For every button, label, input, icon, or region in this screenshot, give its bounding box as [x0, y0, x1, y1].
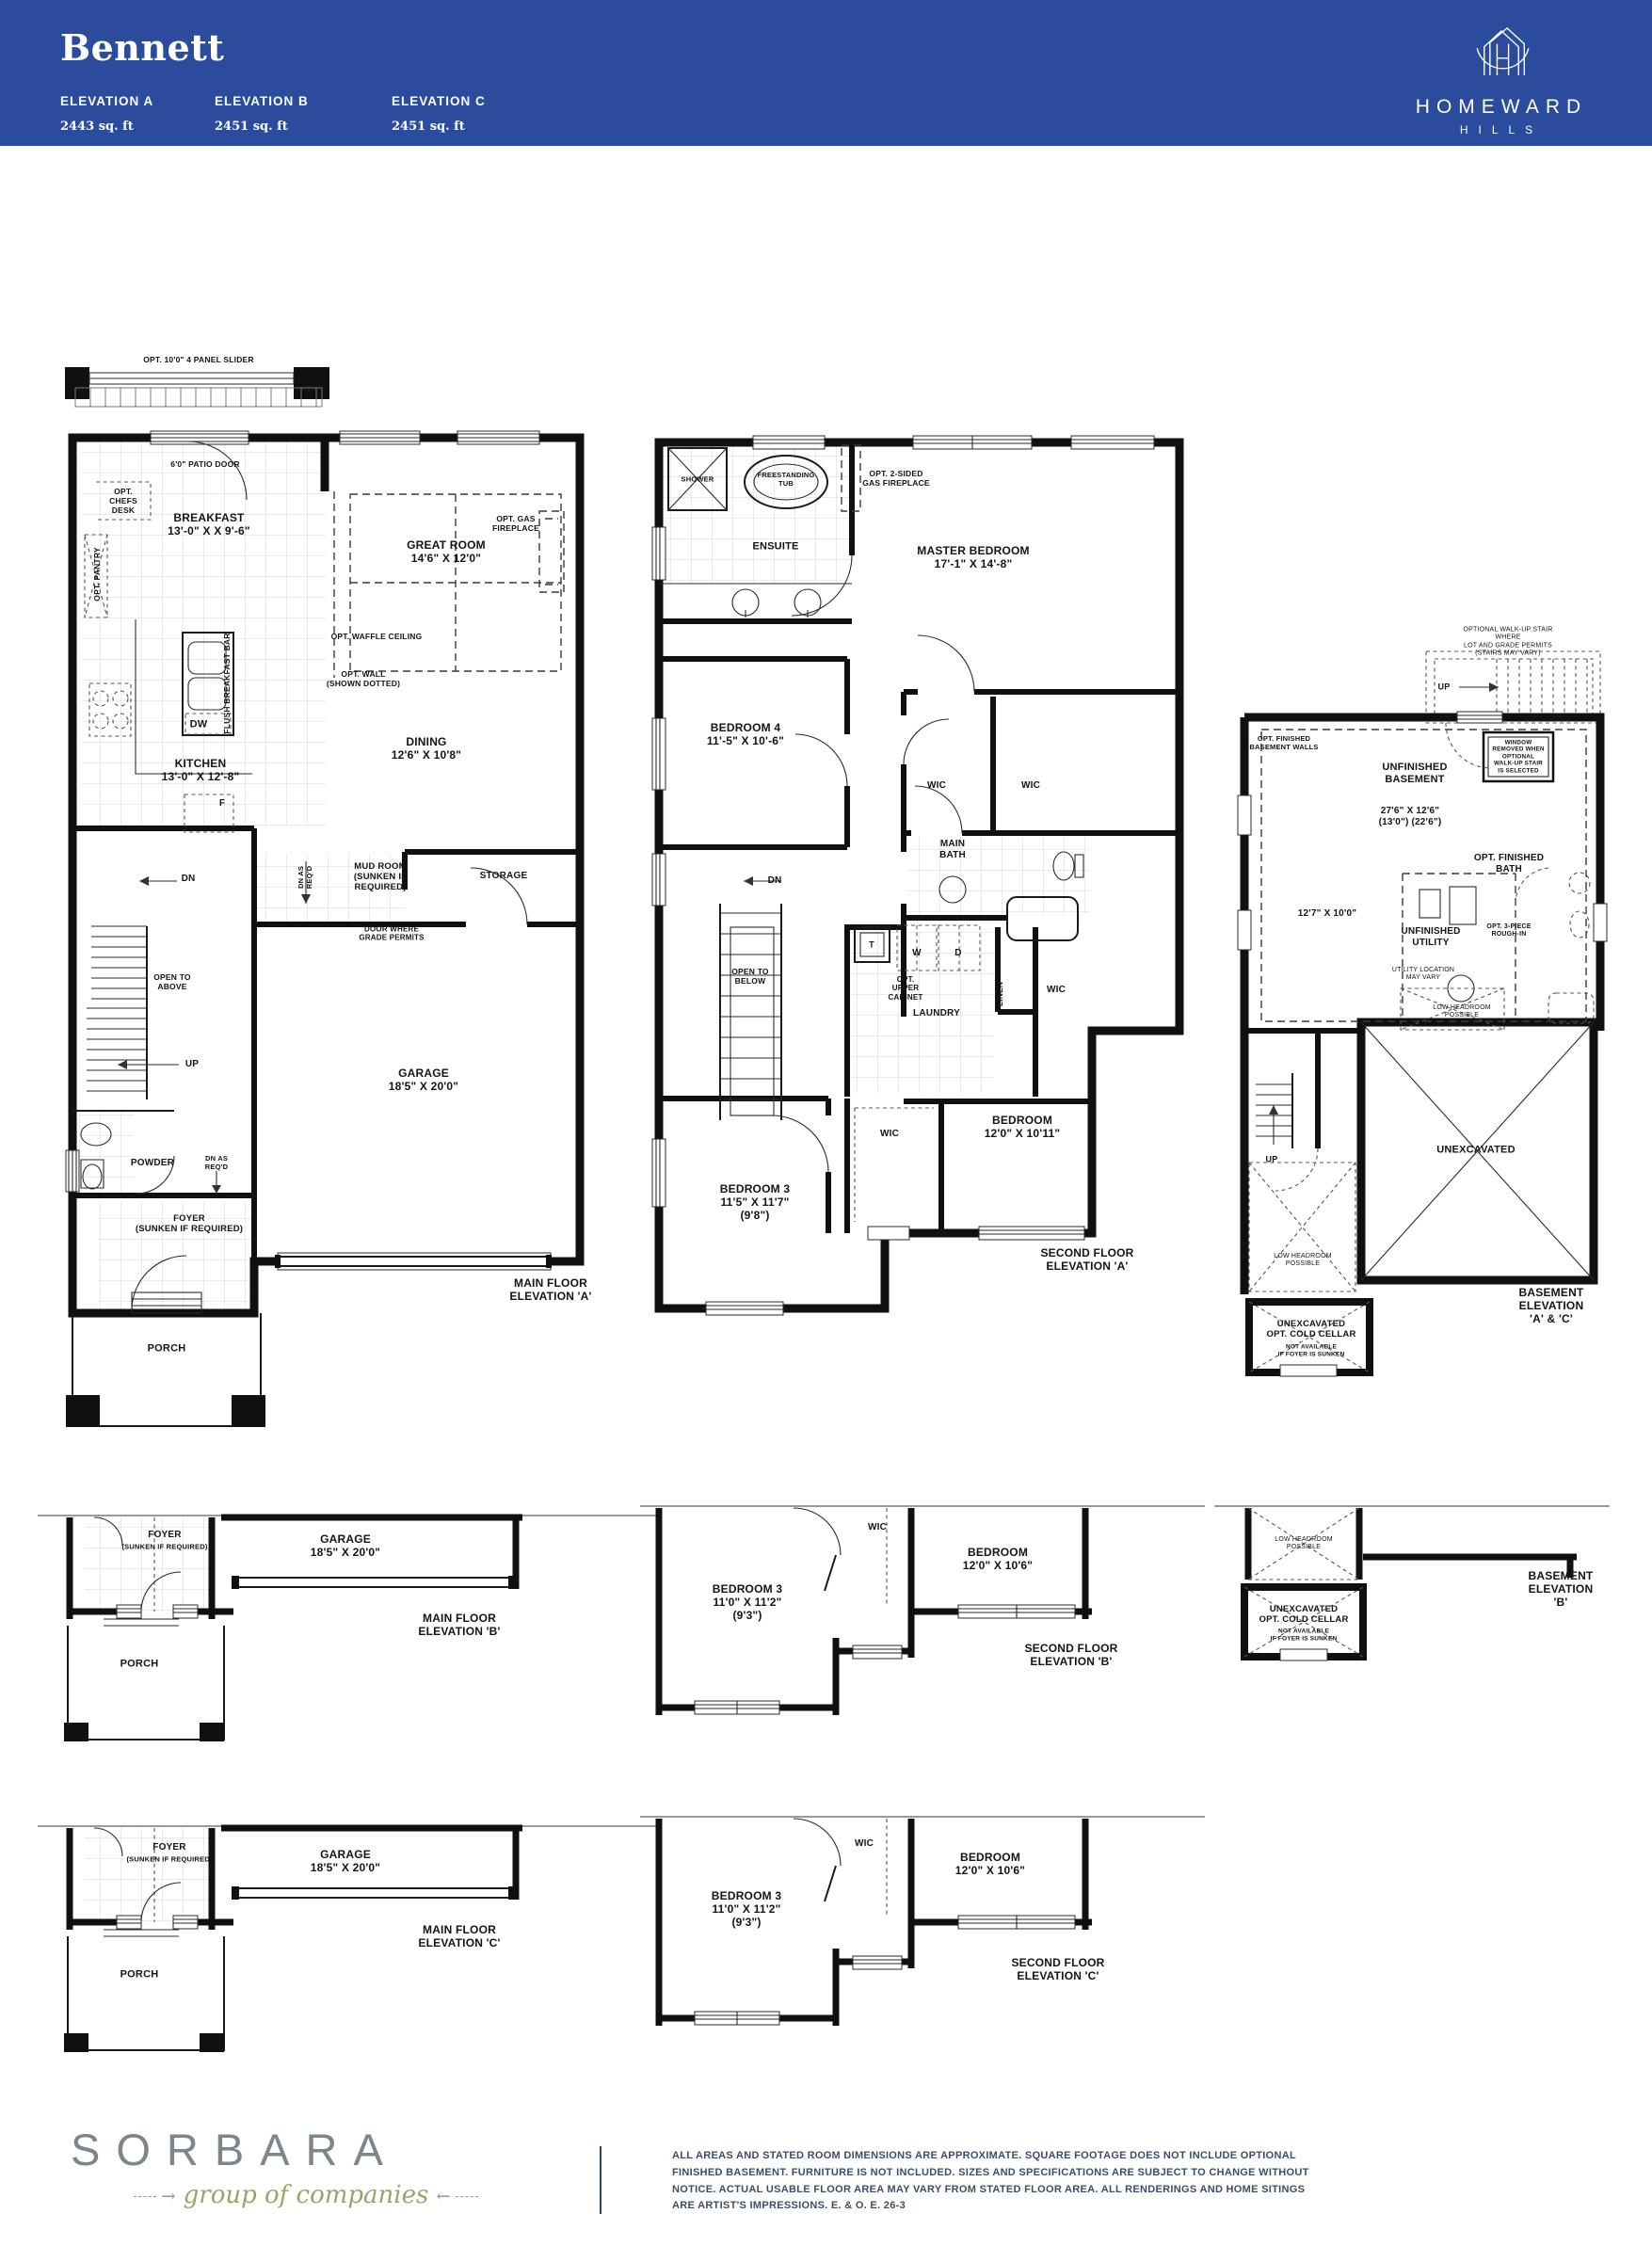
label-sunken-note-c: (SUNKEN IF REQUIRED)	[126, 1856, 212, 1865]
label-breakfast-bar: FLUSH BREAKFAST BAR	[222, 633, 232, 733]
label-basement-dims-2: 12'7" X 10'0"	[1298, 908, 1356, 920]
label-stairs-up-walkout: UP	[1438, 682, 1451, 693]
plan-caption-basement-b: BASEMENT ELEVATION 'B'	[1529, 1569, 1594, 1609]
room-label-garage-c: GARAGE 18'5" X 20'0"	[311, 1848, 380, 1874]
label-low-headroom-1: LOW HEADROOM POSSIBLE	[1433, 1004, 1491, 1020]
label-cold-cellar-note-b: NOT AVAILABLE IF FOYER IS SUNKEN	[1271, 1628, 1338, 1642]
room-label-porch: PORCH	[148, 1343, 186, 1356]
room-label-wic-4: WIC	[880, 1129, 899, 1140]
label-2sided-fireplace: OPT. 2-SIDED GAS FIREPLACE	[862, 469, 930, 488]
room-label-porch-c: PORCH	[120, 1969, 159, 1981]
second-floor-plan-b: WICBEDROOM 12'0" X 10'6"BEDROOM 3 11'0" …	[640, 1497, 1205, 1760]
elevation-c-sqft: 2451 sq. ft	[392, 120, 533, 134]
room-label-opt-bath: OPT. FINISHED BATH	[1474, 853, 1544, 875]
label-freestanding-tub: FREESTANDING TUB	[757, 472, 814, 489]
model-name: Bennett	[60, 26, 224, 69]
elevation-a-label: ELEVATION A	[60, 94, 201, 108]
room-label-bedroom3: BEDROOM 3 11'5" X 11'7" (9'8")	[720, 1182, 790, 1222]
main-floor-plan-b: FOYER(SUNKEN IF REQUIRED)GARAGE 18'5" X …	[38, 1506, 659, 1751]
room-label-great-room: GREAT ROOM 14'6" X 12'0"	[407, 538, 486, 565]
label-dn-as-reqd: DN AS REQ'D	[297, 866, 314, 889]
label-dishwasher: DW	[190, 719, 208, 731]
room-label-garage: GARAGE 18'5" X 20'0"	[389, 1067, 458, 1093]
plan-caption-main-c: MAIN FLOOR ELEVATION 'C'	[418, 1923, 500, 1949]
elevation-b-info: ELEVATION B 2451 sq. ft	[215, 94, 356, 134]
footer-divider	[600, 2146, 601, 2214]
main-floor-plan-c: FOYER(SUNKEN IF REQUIRED)GARAGE 18'5" X …	[38, 1817, 659, 2061]
room-label-powder: POWDER	[131, 1158, 174, 1169]
disclaimer-text: ALL AREAS AND STATED ROOM DIMENSIONS ARE…	[672, 2148, 1329, 2215]
plan-caption-main-a: MAIN FLOOR ELEVATION 'A'	[509, 1276, 591, 1303]
homeward-hills-house-icon	[1466, 21, 1537, 88]
room-label-master-bedroom: MASTER BEDROOM 17'-1" X 14'-8"	[917, 544, 1029, 570]
plan-caption-second-a: SECOND FLOOR ELEVATION 'A'	[1040, 1246, 1133, 1273]
label-low-headroom-2: LOW HEADROOM POSSIBLE	[1274, 1253, 1332, 1269]
label-door-grade: DOOR WHERE GRADE PERMITS	[359, 925, 424, 943]
basement-plan-ac: OPTIONAL WALK-UP STAIR WHERE LOT AND GRA…	[1224, 621, 1619, 1384]
room-label-garage-b: GARAGE 18'5" X 20'0"	[311, 1532, 380, 1559]
room-label-cold-cellar-b: UNEXCAVATED OPT. COLD CELLAR	[1259, 1604, 1348, 1625]
elevation-c-label: ELEVATION C	[392, 94, 533, 108]
elevation-a-info: ELEVATION A 2443 sq. ft	[60, 94, 201, 134]
label-low-headroom-b: LOW HEADROOM POSSIBLE	[1275, 1536, 1333, 1552]
label-shower: SHOWER	[682, 476, 714, 485]
label-sunken-note-b: (SUNKEN IF REQUIRED)	[121, 1544, 207, 1552]
room-label-wic-b: WIC	[868, 1522, 887, 1533]
label-waffle-ceiling: OPT. WAFFLE CEILING	[331, 632, 423, 641]
label-rough-in: OPT. 3-PIECE ROUGH-IN	[1486, 923, 1531, 939]
elevation-c-info: ELEVATION C 2451 sq. ft	[392, 94, 533, 134]
label-opt-wall: OPT. WALL (SHOWN DOTTED)	[327, 669, 400, 688]
label-finished-walls: OPT. FINISHED BASEMENT WALLS	[1249, 735, 1318, 752]
plan-caption-second-c: SECOND FLOOR ELEVATION 'C'	[1011, 1956, 1104, 1982]
basement-plan-b: LOW HEADROOM POSSIBLEUNEXCAVATED OPT. CO…	[1214, 1497, 1619, 1685]
left-arrow-icon: ←	[437, 2187, 483, 2206]
label-stairs-dn-2f: DN	[768, 875, 782, 887]
label-walkup-stair: OPTIONAL WALK-UP STAIR WHERE LOT AND GRA…	[1452, 627, 1564, 658]
room-label-bedroom-c: BEDROOM 12'0" X 10'6"	[955, 1851, 1025, 1877]
main-floor-plan-a: OPT. 10'0" 4 PANEL SLIDER6'0" PATIO DOOR…	[38, 348, 659, 1468]
room-label-laundry: LAUNDRY	[913, 1008, 960, 1019]
sorbara-logo: SORBARA → group of companies ←	[71, 2124, 541, 2209]
room-label-kitchen: KITCHEN 13'-0" X 12'-8"	[162, 757, 240, 783]
room-label-bedroom-b: BEDROOM 12'0" X 10'6"	[963, 1546, 1033, 1572]
room-label-linen: LINEN	[995, 982, 1004, 1007]
label-chefs-desk: OPT. CHEFS DESK	[109, 487, 137, 515]
sorbara-tagline-row: → group of companies ←	[71, 2181, 541, 2209]
room-label-breakfast: BREAKFAST 13'-0" X X 9'-6"	[168, 511, 250, 537]
room-label-porch-b: PORCH	[120, 1659, 159, 1671]
room-label-bedroom4: BEDROOM 4 11'-5" X 10'-6"	[707, 721, 784, 747]
brand-homeward: HOMEWARD	[1403, 96, 1600, 119]
room-label-bedroom3-b: BEDROOM 3 11'0" X 11'2" (9'3")	[713, 1582, 782, 1622]
brand-hills: HILLS	[1403, 123, 1600, 136]
label-gas-fireplace: OPT. GAS FIREPLACE	[492, 514, 539, 533]
right-arrow-icon: →	[129, 2187, 175, 2206]
second-floor-plan-c: WICBEDROOM 12'0" X 10'6"BEDROOM 3 11'0" …	[640, 1807, 1205, 2071]
header-band: Bennett ELEVATION A 2443 sq. ft ELEVATIO…	[0, 0, 1652, 146]
label-utility-location: UTILITY LOCATION MAY VARY	[1392, 967, 1454, 983]
room-label-mud-room: MUD ROOM (SUNKEN IF REQUIRED)	[354, 861, 407, 893]
plan-caption-second-b: SECOND FLOOR ELEVATION 'B'	[1024, 1642, 1117, 1668]
label-stairs-up-bsmt: UP	[1266, 1155, 1278, 1165]
label-upper-cabinet: OPT. UPPER CABINET	[889, 975, 923, 1002]
second-floor-plan-a: SHOWERFREESTANDING TUBENSUITEOPT. 2-SIDE…	[650, 414, 1195, 1337]
room-label-ensuite: ENSUITE	[752, 541, 798, 553]
room-label-cold-cellar: UNEXCAVATED OPT. COLD CELLAR	[1266, 1319, 1355, 1340]
floor-plan-sheet: Bennett ELEVATION A 2443 sq. ft ELEVATIO…	[0, 0, 1652, 2262]
room-label-bedroom3-c: BEDROOM 3 11'0" X 11'2" (9'3")	[712, 1889, 781, 1929]
room-label-wic-2: WIC	[1021, 780, 1040, 792]
label-dryer: D	[954, 948, 961, 959]
plan-caption-main-b: MAIN FLOOR ELEVATION 'B'	[418, 1612, 500, 1638]
label-basement-dims: 27'6" X 12'6" (13'0") (22'6")	[1379, 806, 1442, 828]
room-label-wic-3: WIC	[1047, 985, 1066, 996]
label-opt-panel-slider: OPT. 10'0" 4 PANEL SLIDER	[143, 355, 254, 364]
label-tall-cabinet: T	[869, 940, 874, 951]
label-fridge: F	[219, 798, 225, 810]
room-label-dining: DINING 12'6" X 10'8"	[392, 735, 461, 762]
room-label-foyer-b: FOYER	[148, 1530, 181, 1541]
room-label-foyer-c: FOYER	[152, 1842, 185, 1853]
room-label-storage: STORAGE	[480, 871, 528, 882]
room-label-bedroom: BEDROOM 12'0" X 10'11"	[985, 1114, 1061, 1140]
room-label-foyer: FOYER (SUNKEN IF REQUIRED)	[136, 1213, 243, 1234]
label-window-removed: WINDOW REMOVED WHEN OPTIONAL WALK-UP STA…	[1492, 739, 1544, 774]
label-opt-pantry: OPT. PANTRY	[92, 547, 102, 601]
label-stairs-dn: DN	[182, 874, 196, 885]
elevation-a-sqft: 2443 sq. ft	[60, 120, 201, 134]
label-open-to-below: OPEN TO BELOW	[731, 967, 769, 986]
room-label-wic-c: WIC	[855, 1838, 874, 1850]
label-stairs-up: UP	[185, 1059, 199, 1070]
plan-caption-basement-ac: BASEMENT ELEVATION 'A' & 'C'	[1517, 1286, 1585, 1325]
homeward-hills-logo: HOMEWARD HILLS	[1403, 21, 1600, 136]
elevation-b-sqft: 2451 sq. ft	[215, 120, 356, 134]
label-dn-as-reqd-foyer: DN AS REQ'D	[205, 1155, 228, 1172]
sorbara-wordmark: SORBARA	[71, 2124, 541, 2175]
label-patio-door: 6'0" PATIO DOOR	[170, 459, 239, 469]
label-open-to-above: OPEN TO ABOVE	[153, 972, 191, 991]
label-cold-cellar-note: NOT AVAILABLE IF FOYER IS SUNKEN	[1278, 1343, 1345, 1357]
elevation-b-label: ELEVATION B	[215, 94, 356, 108]
room-label-utility: UNFINISHED UTILITY	[1401, 926, 1460, 949]
room-label-unfinished-basement: UNFINISHED BASEMENT	[1382, 762, 1447, 786]
room-label-main-bath: MAIN BATH	[939, 839, 966, 861]
sorbara-tagline: group of companies	[184, 2181, 429, 2209]
room-label-wic-1: WIC	[927, 780, 946, 792]
room-label-unexcavated: UNEXCAVATED	[1436, 1145, 1515, 1157]
label-washer: W	[912, 948, 922, 959]
